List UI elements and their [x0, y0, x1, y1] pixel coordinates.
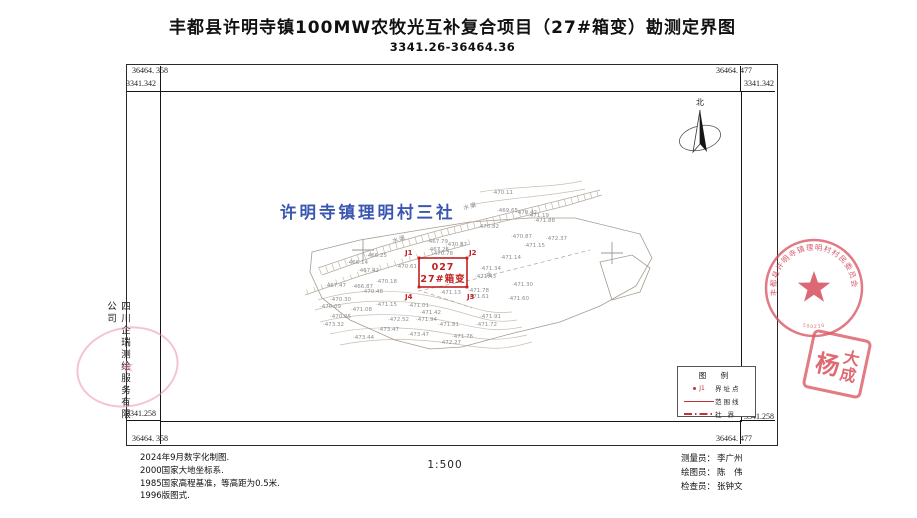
coord-top-left-x: 36464. 358: [132, 66, 168, 75]
spot-height: ·470.78: [432, 251, 453, 257]
spot-height: ·471.01: [408, 303, 429, 309]
corner-tick: [127, 91, 160, 92]
coord-bottom-right-x: 36464. 477: [716, 434, 752, 443]
spot-height: ·472.52: [388, 317, 409, 323]
star-icon: ★: [117, 355, 137, 379]
spot-height: ·471.81: [438, 322, 459, 328]
village-label: 许明寺镇理明村三社: [280, 199, 456, 223]
spot-height: ·470.61: [396, 264, 417, 270]
seal-char: 成: [838, 365, 857, 385]
map-notes: 2024年9月数字化制图.2000国家大地坐标系.1985国家高程基准，等高距为…: [140, 452, 280, 503]
spot-height: ·466.14: [347, 260, 368, 266]
spot-height: ·471.15: [376, 302, 397, 308]
north-label: 北: [696, 98, 704, 107]
scale-label: 1:500: [405, 459, 485, 471]
map-note: 2024年9月数字化制图.: [140, 452, 280, 465]
spot-height: ·467.47: [325, 283, 346, 289]
page-title: 丰都县许明寺镇100MW农牧光互补复合项目（27#箱变）勘测定界图: [0, 13, 905, 38]
legend-item: 范围线: [678, 395, 755, 407]
spot-height: ·471.13: [440, 290, 461, 296]
spot-height: ·471.91: [480, 314, 501, 320]
spot-height: ·470.87: [446, 242, 467, 248]
corner-tick: [741, 91, 775, 92]
coord-bottom-left-x: 36464. 358: [132, 434, 168, 443]
spot-height: ·471.88: [534, 218, 555, 224]
water-label: 水渠: [462, 200, 478, 212]
water-label: 水渠: [391, 233, 407, 245]
spot-height: ·471.94: [416, 317, 437, 323]
credit-line: 检查员：张钟文: [681, 480, 743, 494]
boundary-point-label: J3: [466, 293, 475, 301]
water-label: 水: [486, 271, 493, 279]
spot-height: ·473.47: [378, 327, 399, 333]
spot-height: ·471.30: [512, 282, 533, 288]
survey-sheet: 丰都县许明寺镇100MW农牧光互补复合项目（27#箱变）勘测定界图 3341.2…: [0, 0, 917, 518]
she-boundary-icon: [684, 413, 714, 414]
legend-item: 社 界: [678, 408, 755, 420]
spot-height: ·470.11: [492, 190, 513, 196]
spot-height: ·471.14: [500, 255, 521, 261]
map-canvas: ·470.11·469.65·470.42·471.19·471.88·470.…: [161, 92, 740, 419]
spot-height: ·473.44: [353, 335, 374, 341]
spot-height: ·472.37: [546, 236, 567, 242]
spot-height: ·467.42: [358, 268, 379, 274]
spot-height: ·471.60: [508, 296, 529, 302]
coord-top-left-y: 3341.342: [126, 79, 156, 88]
spot-height: ·471.72: [476, 322, 497, 328]
legend-item: J1界址点: [678, 382, 755, 394]
spot-height: ·471.08: [351, 307, 372, 313]
boundary-point-icon: [693, 387, 696, 390]
map-note: 1996版图式.: [140, 490, 280, 503]
north-arrow-icon: 北: [672, 94, 728, 178]
stamp-number: 500230: [802, 322, 826, 330]
boundary-point-label: J4: [404, 293, 413, 301]
coord-top-right-y: 3341.342: [744, 79, 774, 88]
spot-height: ·470.30: [330, 297, 351, 303]
spot-height: ·470.09: [320, 304, 341, 310]
spot-height: ·470.87: [511, 234, 532, 240]
spot-height: ·471.15: [524, 243, 545, 249]
boundary-point-label: J1: [404, 249, 413, 257]
page-subtitle: 3341.26-36464.36: [0, 40, 905, 54]
spot-height: ·470.48: [362, 289, 383, 295]
spot-height: ·473.47: [408, 332, 429, 338]
parcel-code: 027: [432, 262, 455, 273]
credit-line: 绘图员：陈 伟: [681, 466, 743, 480]
parcel-name: 27#箱变: [420, 273, 465, 285]
spot-height: ·471.42: [420, 310, 441, 316]
spot-height: ·470.18: [376, 279, 397, 285]
coord-top-right-x: 36464. 477: [716, 66, 752, 75]
map-note: 2000国家大地坐标系.: [140, 465, 280, 478]
spot-height: ·470.82: [478, 224, 499, 230]
spot-height: ·466.25: [366, 253, 387, 259]
map-note: 1985国家高程基准，等高距为0.5米.: [140, 478, 280, 491]
corner-tick: [127, 420, 160, 421]
spot-height: ·470.05: [330, 314, 351, 320]
legend-title: 图 例: [678, 370, 755, 381]
name-seal: 杨 大 成: [801, 328, 872, 399]
spot-height: ·473.32: [323, 322, 344, 328]
village-committee-stamp: 丰都县许明寺镇理明村村民委员会 500230: [762, 236, 866, 340]
star-icon: [798, 271, 830, 302]
legend: 图 例 J1界址点范围线社 界: [677, 366, 756, 417]
credit-line: 测量员：李广州: [681, 452, 743, 466]
svg-text:500230: 500230: [802, 322, 826, 330]
range-line-icon: [684, 401, 714, 402]
credits-block: 测量员：李广州绘图员：陈 伟检查员：张钟文: [681, 452, 743, 494]
boundary-point-label: J2: [468, 249, 477, 257]
spot-height: ·472.27: [440, 340, 461, 346]
